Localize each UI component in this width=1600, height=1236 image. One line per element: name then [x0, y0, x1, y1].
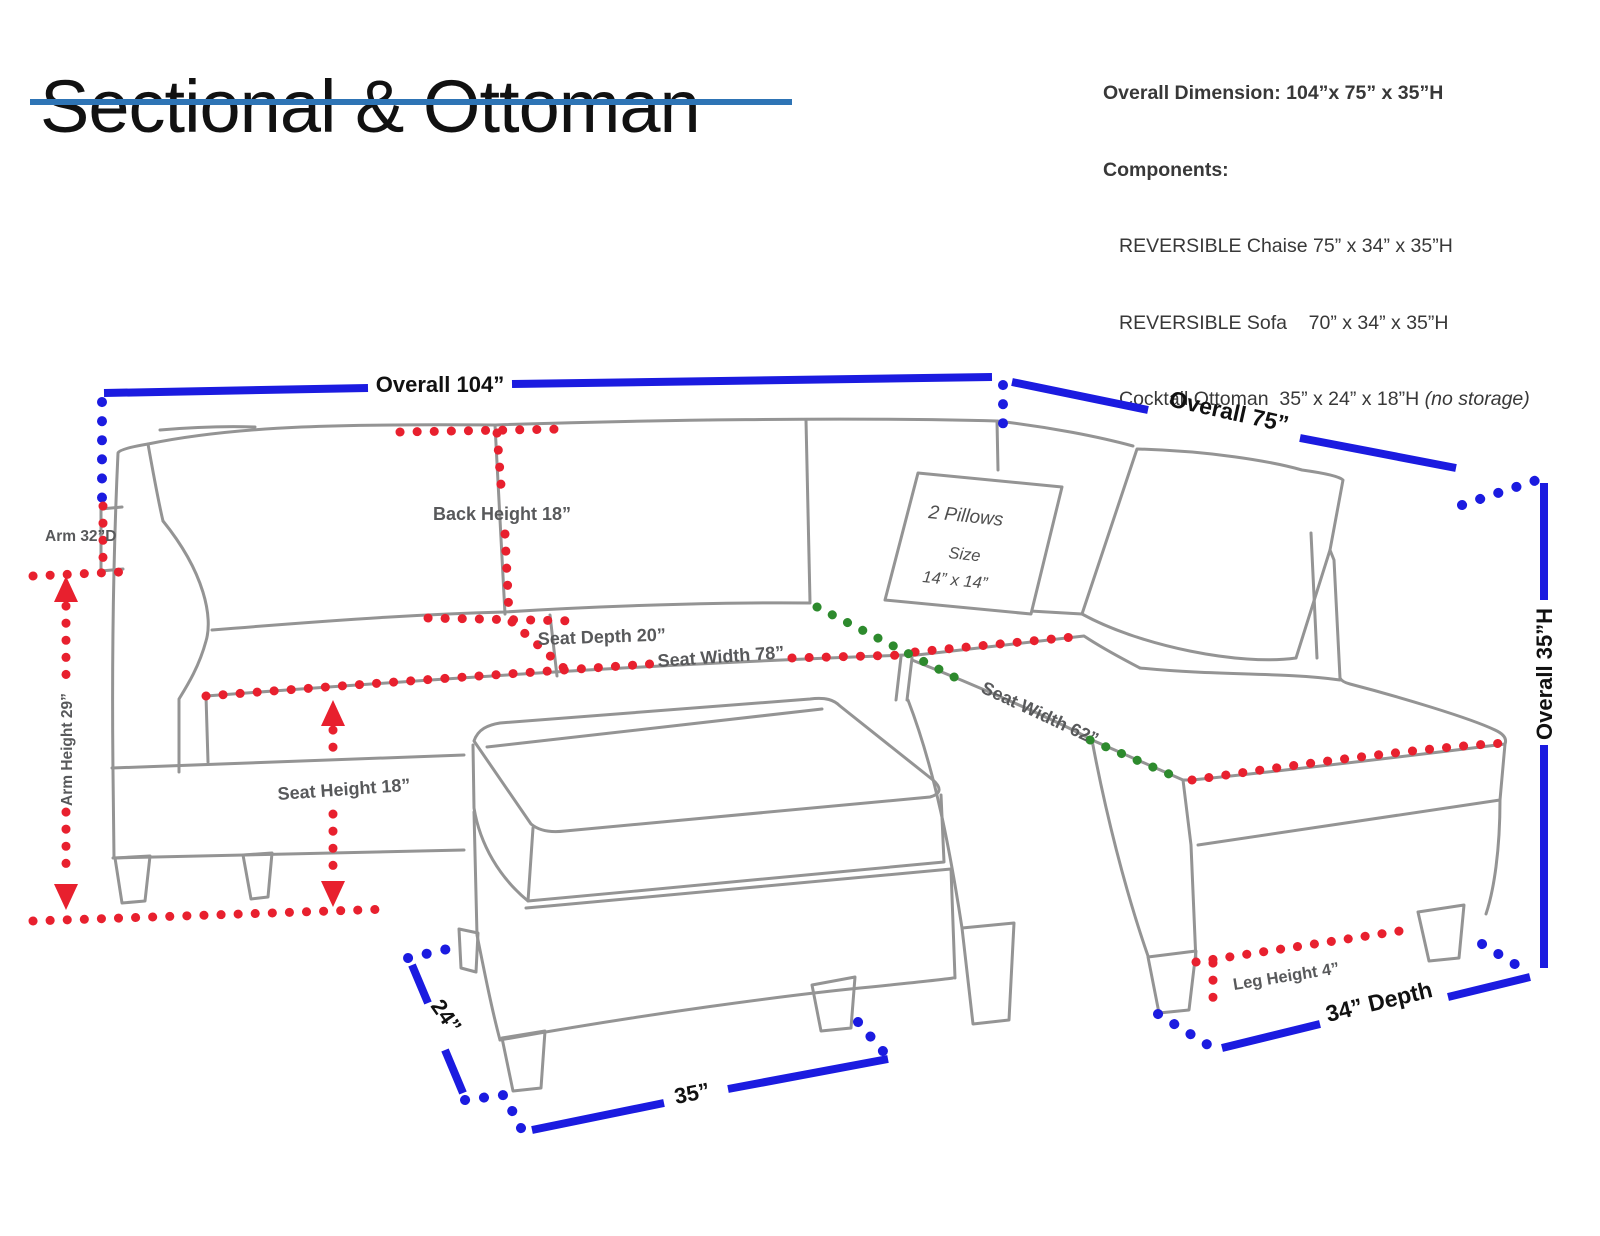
chaise-back-cushion: [1082, 449, 1343, 660]
seat-height-arrow-up: [321, 700, 345, 726]
label-seat-height: Seat Height 18”: [277, 775, 411, 804]
dim-line-overall-104-right: [512, 377, 992, 384]
dim-back-height-top-tick: [400, 429, 563, 432]
sofa-back-seam-2: [806, 420, 810, 602]
ottoman-base-front-top: [526, 869, 951, 908]
seat-cushion-corner: [206, 696, 208, 762]
dim-connector-ottoman-back: [408, 948, 452, 958]
label-34-depth: 34” Depth: [1323, 976, 1435, 1027]
label-seat-depth: Seat Depth 20”: [537, 625, 666, 649]
chaise-leg-left: [1148, 951, 1196, 1013]
pillow-outline: [885, 473, 1062, 614]
chaise-frame-right-edge: [1330, 550, 1340, 678]
label-arm-depth: Arm 32”D: [45, 528, 117, 545]
ottoman-leg-front-right: [812, 977, 855, 1031]
dim-line-24-bottom: [445, 1050, 463, 1093]
base-behind-ottoman: [908, 700, 962, 928]
dim-line-24-top: [412, 965, 428, 1003]
label-leg-height: Leg Height 4”: [1232, 959, 1341, 994]
sofa-leg-2: [243, 853, 272, 899]
dim-chaise-base: [1196, 929, 1413, 962]
pillow-group: 2 Pillows Size 14” x 14”: [885, 473, 1062, 614]
sofa-back-top-edge: [148, 419, 997, 444]
sofa-leg-1: [115, 856, 150, 903]
dim-line-overall-75-left: [1012, 382, 1148, 410]
left-arm-top: [148, 444, 163, 521]
sofa-line-art: [101, 419, 1506, 1091]
label-back-height: Back Height 18”: [433, 504, 571, 524]
dim-seat-width-78-left: [206, 664, 650, 696]
arm-height-arrow-up: [54, 576, 78, 602]
dim-seat-width-62-right: [1090, 740, 1183, 780]
dim-line-35-right: [728, 1059, 888, 1089]
chaise-seat-back-edge: [908, 636, 1140, 668]
base-front-top: [112, 755, 464, 768]
dim-connector-chaise-left: [1158, 1014, 1208, 1045]
right-back-top-edge: [997, 421, 1133, 446]
dim-line-34-depth-right: [1448, 977, 1530, 997]
base-front-bottom: [113, 850, 464, 858]
label-ottoman-35: 35”: [672, 1078, 712, 1109]
pillow-size-word: Size: [948, 544, 982, 565]
label-seat-width-62: Seat Width 62”: [978, 677, 1101, 749]
sofa-leg-3: [962, 923, 1014, 1024]
spec-sheet-page: Sectional & Ottoman Overall Dimension: 1…: [0, 0, 1600, 1236]
chaise-leg-right: [1418, 905, 1464, 961]
ottoman-cushion-seam: [487, 709, 822, 747]
chaise-right-edge: [1340, 678, 1506, 744]
chaise-cushion-side-right: [1486, 744, 1505, 914]
chaise-seat-under-cushion: [1140, 668, 1340, 680]
label-ottoman-24: 24”: [426, 995, 467, 1038]
dim-connector-ottoman-corner: [465, 1095, 522, 1130]
dim-line-34-depth-left: [1222, 1024, 1320, 1048]
dim-arm-top-tick: [33, 572, 120, 576]
seat-gap-seam-b: [907, 658, 912, 700]
label-overall-104: Overall 104”: [376, 372, 504, 397]
dim-connector-ottoman-right: [858, 1022, 888, 1057]
dim-back-height-lower: [505, 534, 509, 614]
left-arm-cushion: [163, 521, 208, 772]
dim-line-overall-75-right: [1300, 438, 1456, 468]
ottoman-cushion-top: [474, 698, 939, 831]
label-overall-35h: Overall 35”H: [1532, 608, 1557, 740]
chaise-cushion-side-left: [1183, 780, 1196, 962]
chaise-cushion-bottom: [1198, 800, 1500, 845]
dim-connector-top-right: [1462, 480, 1537, 505]
red-arrowheads: [54, 576, 345, 910]
sofa-corner-seam: [997, 421, 998, 470]
label-overall-75: Overall 75”: [1167, 385, 1291, 437]
label-seat-width-78: Seat Width 78”: [657, 642, 785, 671]
dim-line-35-left: [532, 1103, 664, 1130]
label-arm-height: Arm Height 29”: [59, 693, 76, 806]
junction-behind-pillow: [1030, 611, 1082, 614]
arm-height-arrow-down: [54, 884, 78, 910]
ottoman-leg-back: [459, 929, 478, 972]
dim-seat-width-62-left: [817, 607, 960, 680]
dim-floor-line: [33, 909, 390, 921]
dim-connector-bottom-right: [1482, 944, 1526, 971]
gray-dimension-labels: Back Height 18” Seat Depth 20” Seat Widt…: [45, 504, 1341, 994]
ottoman-base-front-bottom: [500, 978, 953, 1040]
seat-gap-seam-a: [896, 657, 901, 700]
chaise-base-back-left: [1092, 740, 1148, 956]
seat-height-arrow-down: [321, 881, 345, 907]
dim-line-overall-104-left: [104, 388, 368, 393]
sectional-diagram: 2 Pillows Size 14” x 14”: [0, 0, 1600, 1236]
dim-back-seat-junction-tick: [428, 618, 580, 621]
